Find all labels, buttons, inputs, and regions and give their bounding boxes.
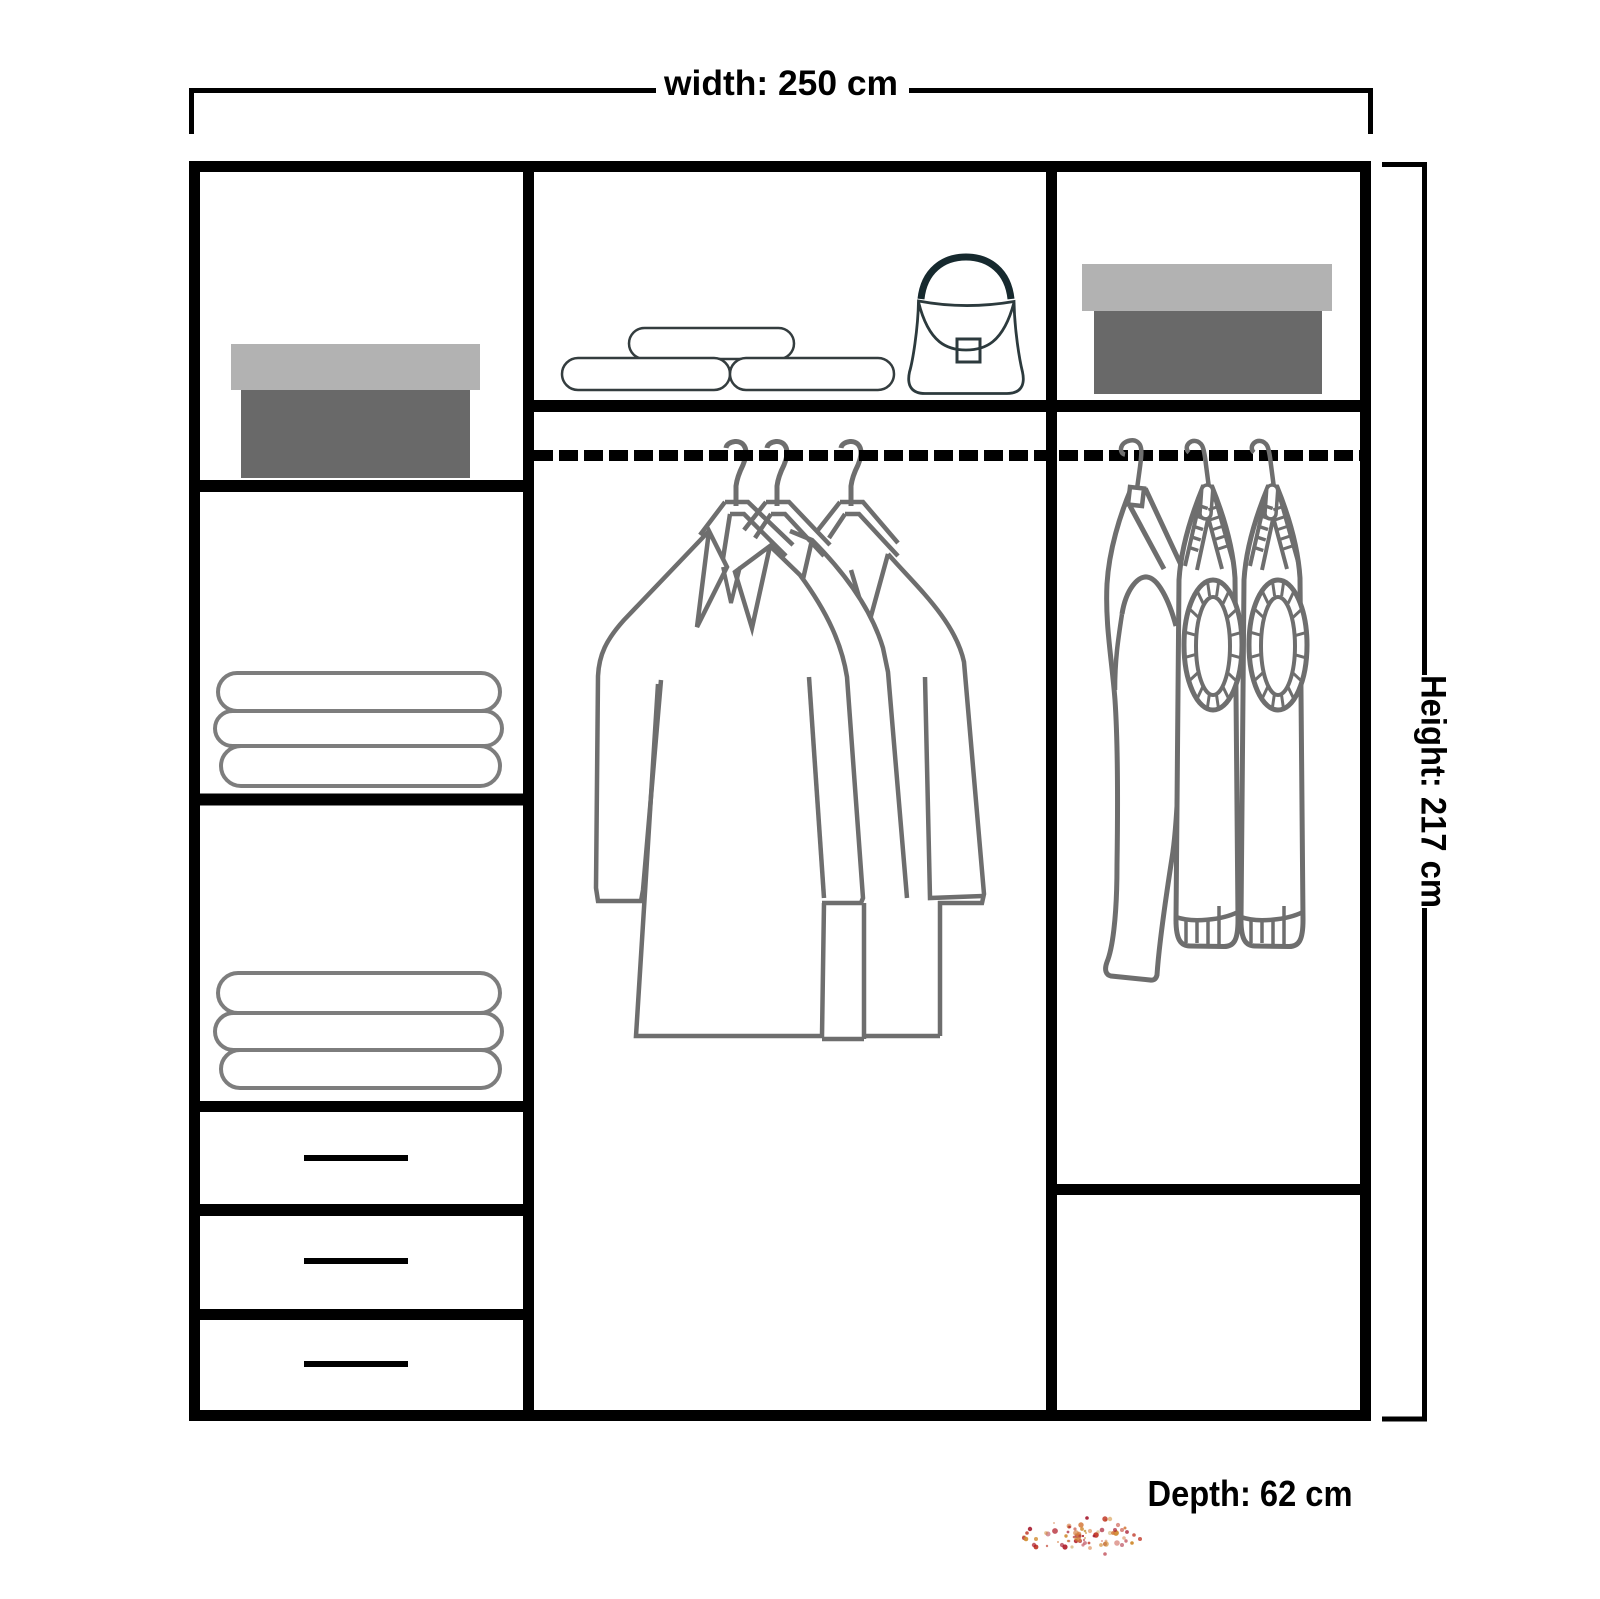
svg-text:Height: 217 cm: Height: 217 cm bbox=[1414, 675, 1453, 908]
svg-text:width: 250 cm: width: 250 cm bbox=[663, 64, 898, 103]
svg-text:Depth: 62 cm: Depth: 62 cm bbox=[1148, 1473, 1353, 1514]
